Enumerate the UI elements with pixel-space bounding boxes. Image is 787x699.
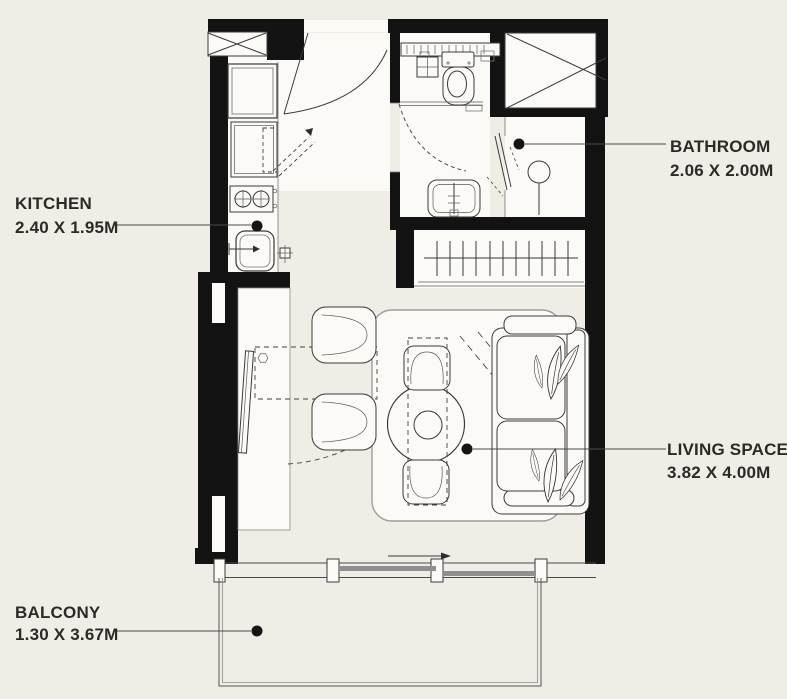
shaft-right-icon	[505, 33, 606, 108]
shaft-left-icon	[208, 32, 267, 56]
wardrobe-icon	[414, 230, 585, 286]
kitchen-label-dimensions: 2.40 X 1.95M	[15, 218, 119, 237]
living-space-anchor-dot	[462, 444, 473, 455]
stove-icon	[230, 186, 277, 212]
bathroom-sink-icon	[428, 180, 480, 217]
living-space-label-name: LIVING SPACE	[667, 440, 787, 459]
bathroom-anchor-dot	[514, 139, 525, 150]
dining-chair-icon	[403, 460, 449, 504]
sofa-icon	[492, 316, 589, 514]
bathroom-label-name: BATHROOM	[670, 137, 770, 156]
living-space-label-dimensions: 3.82 X 4.00M	[667, 463, 771, 482]
bathroom-label-dimensions: 2.06 X 2.00M	[670, 161, 774, 180]
desk-chair-icon	[312, 394, 376, 450]
dining-chair-icon	[404, 346, 450, 390]
toilet-icon	[442, 52, 474, 105]
wall-joint-slot	[212, 496, 225, 552]
balcony-anchor-dot	[252, 626, 263, 637]
dining-table-icon	[388, 386, 465, 463]
desk-chair-icon	[312, 307, 376, 363]
wall-joint-slot	[212, 283, 225, 323]
kitchen-anchor-dot	[252, 221, 263, 232]
kitchen-label-name: KITCHEN	[15, 194, 92, 213]
floor-plan: KITCHEN 2.40 X 1.95M BATHROOM 2.06 X 2.0…	[0, 0, 787, 699]
balcony-label-dimensions: 1.30 X 3.67M	[15, 625, 119, 644]
floor-plan-canvas: KITCHEN 2.40 X 1.95M BATHROOM 2.06 X 2.0…	[0, 0, 787, 699]
fridge-icon	[228, 64, 277, 118]
balcony-label-name: BALCONY	[15, 603, 101, 622]
